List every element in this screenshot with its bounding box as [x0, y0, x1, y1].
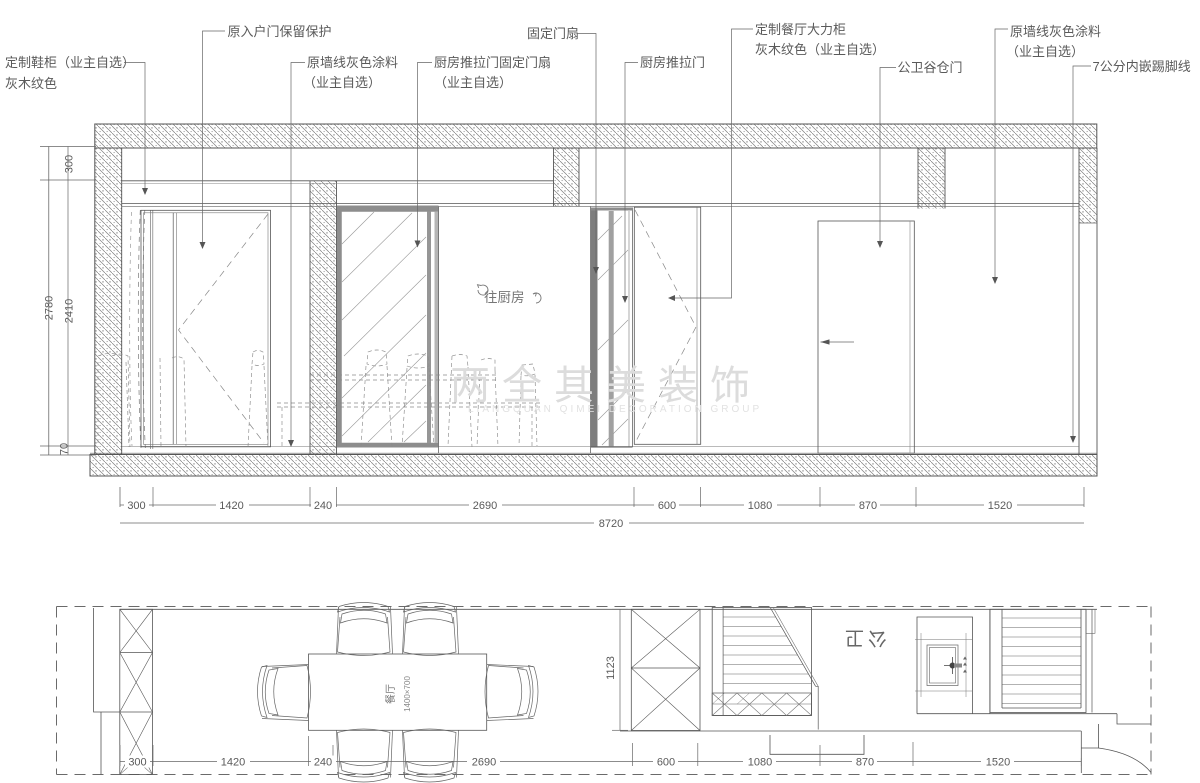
svg-text:往厨房: 往厨房 — [484, 290, 525, 305]
svg-text:定制餐厅大力柜: 定制餐厅大力柜 — [755, 22, 846, 37]
svg-text:定制鞋柜（业主自选）: 定制鞋柜（业主自选） — [5, 55, 135, 70]
svg-text:1123: 1123 — [605, 656, 617, 680]
svg-text:1080: 1080 — [748, 500, 772, 512]
svg-text:两全其美装饰: 两全其美装饰 — [450, 364, 762, 408]
svg-text:1420: 1420 — [221, 757, 245, 769]
svg-text:2690: 2690 — [472, 757, 496, 769]
svg-text:2690: 2690 — [473, 500, 497, 512]
svg-text:600: 600 — [658, 500, 676, 512]
svg-text:300: 300 — [128, 757, 146, 769]
svg-text:1420: 1420 — [219, 500, 243, 512]
svg-text:1520: 1520 — [988, 500, 1012, 512]
svg-text:灰木纹色（业主自选）: 灰木纹色（业主自选） — [755, 42, 885, 57]
svg-text:8720: 8720 — [599, 518, 623, 530]
svg-text:870: 870 — [859, 500, 877, 512]
svg-text:原墙线灰色涂料: 原墙线灰色涂料 — [307, 55, 398, 70]
svg-text:240: 240 — [314, 500, 332, 512]
svg-text:600: 600 — [657, 757, 675, 769]
svg-text:2780: 2780 — [44, 296, 56, 320]
svg-text:（业主自选）: （业主自选） — [303, 75, 381, 90]
svg-text:1400×700: 1400×700 — [403, 676, 412, 712]
svg-text:300: 300 — [127, 500, 145, 512]
svg-text:300: 300 — [64, 155, 76, 173]
svg-text:餐厅: 餐厅 — [384, 684, 397, 704]
svg-text:7公分内嵌踢脚线: 7公分内嵌踢脚线 — [1093, 59, 1191, 74]
svg-text:1520: 1520 — [986, 757, 1010, 769]
svg-text:厨房推拉门固定门扇: 厨房推拉门固定门扇 — [434, 55, 551, 70]
svg-text:固定门扇: 固定门扇 — [527, 26, 579, 41]
svg-text:（业主自选）: （业主自选） — [434, 75, 512, 90]
svg-text:LIANGQUAN QIMEI DECORATION GRO: LIANGQUAN QIMEI DECORATION GROUP — [468, 404, 762, 415]
svg-text:70: 70 — [59, 443, 71, 455]
svg-text:灰木纹色: 灰木纹色 — [5, 76, 57, 91]
svg-text:（业主自选）: （业主自选） — [1006, 44, 1084, 59]
svg-text:原墙线灰色涂料: 原墙线灰色涂料 — [1010, 24, 1101, 39]
svg-text:厨房推拉门: 厨房推拉门 — [640, 55, 705, 70]
svg-text:公卫: 公卫 — [841, 627, 887, 648]
svg-text:公卫谷仓门: 公卫谷仓门 — [898, 60, 963, 75]
svg-text:870: 870 — [856, 757, 874, 769]
svg-text:原入户门保留保护: 原入户门保留保护 — [228, 24, 332, 39]
svg-text:240: 240 — [314, 757, 332, 769]
svg-text:2410: 2410 — [64, 299, 76, 323]
svg-text:1080: 1080 — [748, 757, 772, 769]
